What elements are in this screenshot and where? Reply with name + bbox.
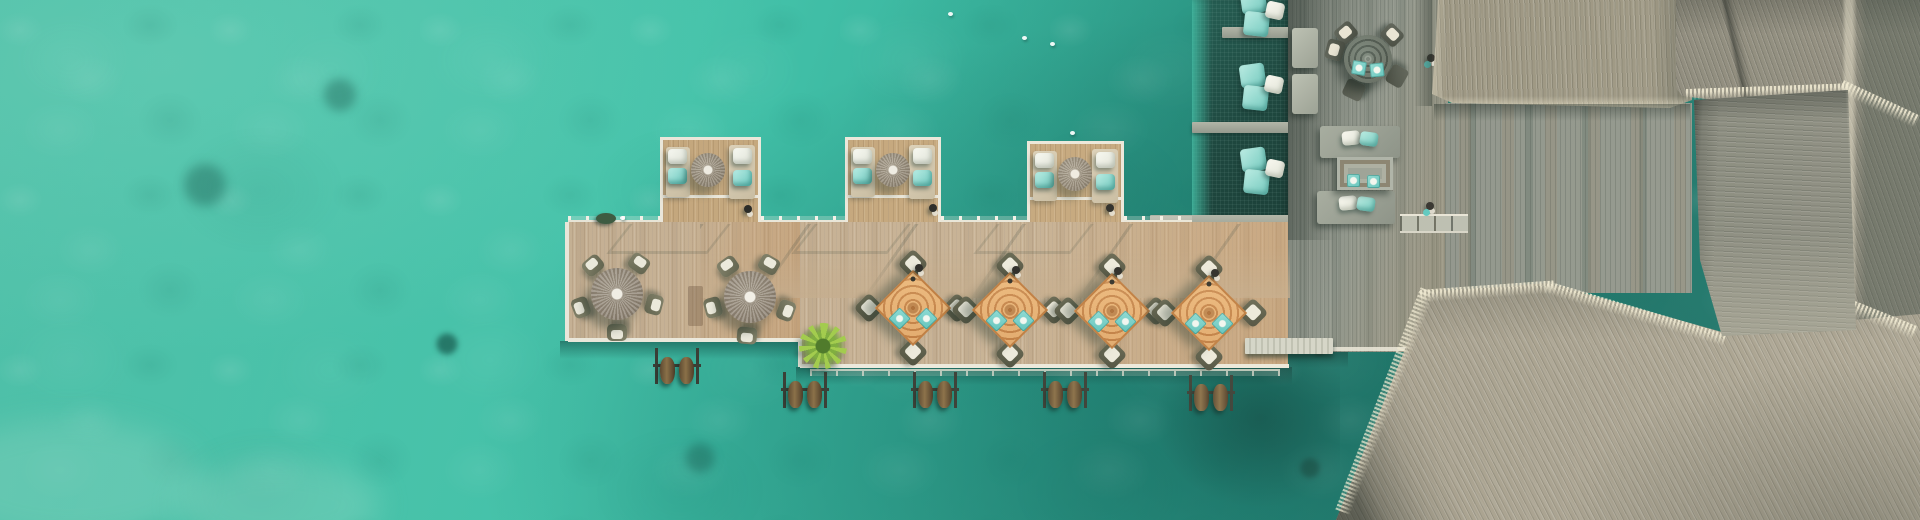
daybed-pillow — [1096, 152, 1115, 168]
swim-ladder — [906, 368, 964, 416]
edge-daybed — [1292, 74, 1318, 114]
swim-ladder — [648, 344, 706, 392]
white-bird — [620, 216, 625, 220]
cabana-round-table — [691, 153, 725, 187]
edge-daybed — [1292, 28, 1318, 68]
diner-person — [1114, 267, 1122, 275]
ladder-float — [1194, 384, 1209, 411]
thatched-gable-wall — [1688, 90, 1858, 336]
daybed-pillow — [733, 148, 752, 164]
table-bottle — [1205, 280, 1212, 287]
person — [1426, 202, 1434, 210]
dining-chair — [570, 295, 593, 320]
daybed-pillow — [1096, 174, 1115, 190]
daybed-pillow — [668, 168, 687, 184]
table-setting-teal — [1211, 312, 1234, 335]
orange-dining-table — [875, 270, 951, 346]
deck-lounger — [1317, 191, 1395, 224]
chair-cushion — [650, 298, 662, 312]
white-bird — [1050, 42, 1055, 46]
chair-cushion — [1328, 43, 1341, 57]
table-bottle — [1006, 277, 1013, 284]
overwater-cabana — [845, 137, 941, 222]
ladder-float — [918, 381, 933, 408]
daybed-pillow — [1035, 153, 1054, 168]
chair-cushion — [763, 256, 778, 270]
daybed-pillow — [913, 170, 932, 186]
table-setting-teal — [1012, 309, 1035, 332]
round-woven-table — [724, 271, 776, 323]
roof-shadow — [1434, 104, 1690, 121]
chair-cushion — [573, 301, 586, 315]
daybed-pillow — [853, 149, 872, 164]
orange-dining-table — [1074, 273, 1150, 349]
chair-cushion — [632, 255, 647, 269]
ladder-float — [807, 381, 822, 408]
service-ledge — [1245, 338, 1333, 354]
orange-dining-table — [972, 272, 1048, 348]
lounger-pillow — [1356, 196, 1376, 212]
table-setting-teal — [1369, 62, 1384, 77]
chair-cushion — [705, 301, 717, 315]
restaurant-round-table — [1344, 35, 1392, 83]
person — [744, 205, 752, 213]
dining-chair — [736, 326, 757, 345]
daybed-pillow — [913, 148, 932, 164]
lounger-pillow — [1359, 131, 1379, 147]
diner-person — [1012, 266, 1020, 274]
table-setting-teal — [1347, 174, 1360, 187]
swim-ladder — [776, 368, 834, 416]
table-setting-teal — [888, 307, 911, 330]
dining-chair — [774, 298, 797, 323]
ladder-float — [1067, 381, 1082, 408]
lounger-pillow — [1338, 195, 1357, 211]
ladder-float — [1213, 384, 1228, 411]
swim-ladder — [1036, 368, 1094, 416]
ladder-float — [1048, 381, 1063, 408]
chair-cushion — [781, 304, 794, 318]
ladder-float — [660, 357, 675, 384]
ladder-float — [937, 381, 952, 408]
potted-plant — [799, 323, 847, 369]
fire-pit-table — [1337, 157, 1393, 190]
chair-cushion — [611, 330, 623, 339]
chair-cushion — [740, 332, 753, 342]
daybed-pillow — [1035, 172, 1054, 188]
dining-chair — [702, 295, 724, 319]
chair-cushion — [720, 258, 735, 272]
person — [929, 204, 937, 212]
table-setting-teal — [1087, 310, 1110, 333]
orange-dining-table — [1171, 275, 1247, 351]
white-bird — [1070, 131, 1075, 135]
cabana-round-table — [876, 153, 910, 187]
person — [1106, 204, 1114, 212]
swim-ladder — [1182, 371, 1240, 419]
ladder-float — [679, 357, 694, 384]
chair-cushion — [1385, 26, 1401, 42]
daybed-pillow — [668, 149, 687, 164]
dining-chair — [643, 292, 665, 316]
aerial-resort-photo — [0, 0, 1920, 520]
table-setting-teal — [1184, 312, 1207, 335]
daybed-pillow — [853, 168, 872, 184]
round-woven-table — [591, 268, 643, 320]
diner-person — [915, 264, 923, 272]
ladder-float — [788, 381, 803, 408]
table-setting-teal — [1351, 60, 1367, 76]
daybed-pillow — [733, 170, 752, 186]
table-bottle — [909, 275, 916, 282]
chair-cushion — [584, 257, 599, 272]
chair-cushion — [1338, 25, 1354, 40]
table-setting-teal — [915, 307, 938, 330]
deck-pot — [596, 213, 616, 224]
roof-shadow-left — [1414, 0, 1432, 106]
cabana-round-table — [1058, 157, 1092, 191]
white-bird — [948, 12, 953, 16]
deck-lounger — [1320, 126, 1400, 158]
white-bird — [1022, 36, 1027, 40]
thatched-roof-pavilion — [1432, 0, 1692, 112]
lounger-pillow — [1341, 130, 1360, 146]
dining-chair — [607, 324, 627, 341]
diner-person — [1211, 269, 1219, 277]
table-setting-teal — [1367, 175, 1380, 188]
table-setting-teal — [1114, 310, 1137, 333]
table-bottle — [1108, 278, 1115, 285]
table-setting-teal — [985, 309, 1008, 332]
